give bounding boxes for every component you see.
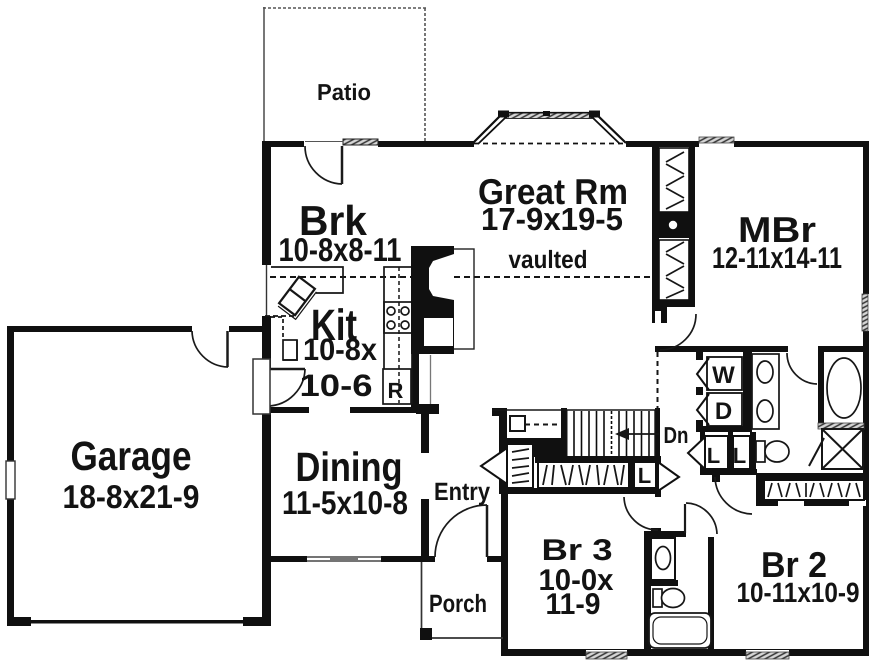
- svg-text:10-8x: 10-8x: [303, 332, 378, 367]
- svg-text:R: R: [388, 378, 405, 403]
- svg-text:18-8x21-9: 18-8x21-9: [63, 478, 200, 515]
- svg-text:W: W: [712, 362, 736, 389]
- svg-text:Br 3: Br 3: [542, 534, 613, 567]
- svg-text:11-5x10-8: 11-5x10-8: [282, 484, 408, 521]
- svg-text:Dn: Dn: [664, 422, 689, 448]
- svg-text:Patio: Patio: [317, 79, 371, 105]
- svg-text:L: L: [733, 443, 747, 468]
- svg-text:10-11x10-9: 10-11x10-9: [737, 577, 860, 608]
- svg-text:17-9x19-5: 17-9x19-5: [481, 201, 623, 237]
- svg-text:Garage: Garage: [71, 433, 192, 479]
- svg-text:L: L: [707, 443, 721, 468]
- svg-text:Porch: Porch: [429, 590, 487, 618]
- svg-text:11-9: 11-9: [546, 588, 601, 621]
- svg-text:Entry: Entry: [434, 478, 490, 506]
- svg-text:L: L: [638, 463, 652, 488]
- svg-text:10-6: 10-6: [300, 368, 373, 403]
- svg-text:D: D: [715, 398, 733, 425]
- svg-text:vaulted: vaulted: [509, 246, 588, 274]
- svg-text:10-8x8-11: 10-8x8-11: [279, 231, 402, 268]
- svg-text:12-11x14-11: 12-11x14-11: [712, 242, 842, 275]
